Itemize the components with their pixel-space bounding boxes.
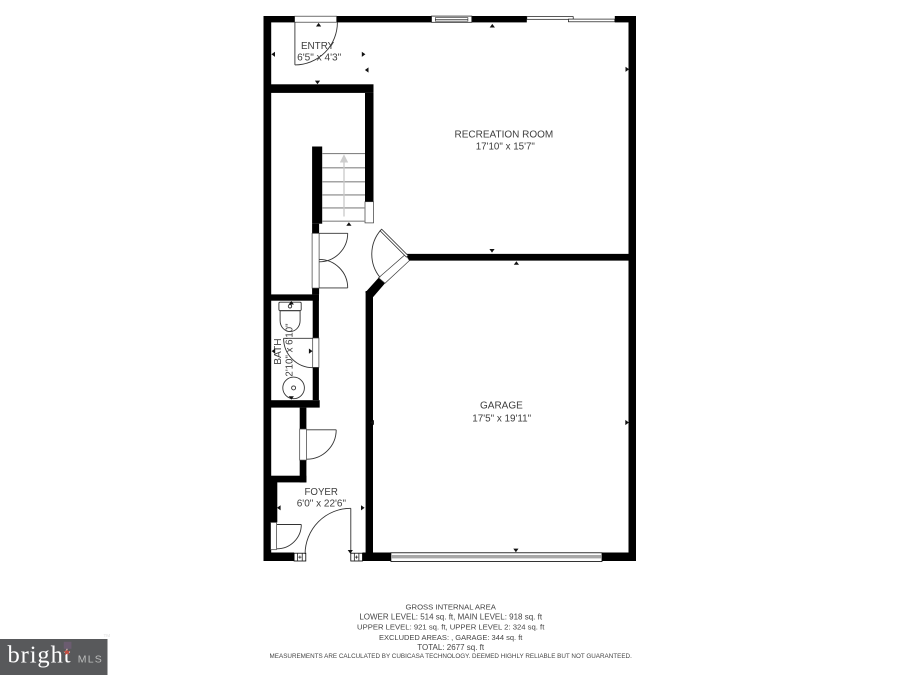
svg-text:FOYER: FOYER — [305, 487, 338, 498]
svg-text:LOWER LEVEL: 514 sq. ft, MAIN: LOWER LEVEL: 514 sq. ft, MAIN LEVEL: 918… — [359, 612, 543, 621]
svg-text:TM: TM — [104, 633, 111, 638]
svg-text:17'5" x 19'11": 17'5" x 19'11" — [472, 414, 531, 425]
svg-text:TOTAL: 2677 sq. ft: TOTAL: 2677 sq. ft — [417, 643, 485, 652]
svg-text:GARAGE: GARAGE — [480, 400, 523, 411]
svg-text:RECREATION ROOM: RECREATION ROOM — [455, 129, 554, 140]
svg-text:GROSS INTERNAL AREA: GROSS INTERNAL AREA — [406, 602, 497, 611]
svg-text:MEASUREMENTS ARE CALCULATED BY: MEASUREMENTS ARE CALCULATED BY CUBICASA … — [270, 653, 633, 660]
svg-text:2'10" x 6'10": 2'10" x 6'10" — [285, 323, 296, 377]
svg-text:bright: bright — [8, 642, 72, 669]
svg-text:17'10" x 15'7": 17'10" x 15'7" — [476, 141, 536, 152]
svg-text:ENTRY: ENTRY — [301, 41, 335, 52]
svg-text:6'5" x 4'3": 6'5" x 4'3" — [297, 53, 342, 64]
svg-text:EXCLUDED AREAS: , GARAGE: 344: EXCLUDED AREAS: , GARAGE: 344 sq. ft — [379, 633, 523, 642]
svg-text:MLS: MLS — [78, 654, 103, 666]
svg-text:UPPER LEVEL: 921 sq. ft, UPPER: UPPER LEVEL: 921 sq. ft, UPPER LEVEL 2: … — [357, 623, 545, 632]
svg-text:6'0" x 22'6": 6'0" x 22'6" — [297, 498, 347, 509]
